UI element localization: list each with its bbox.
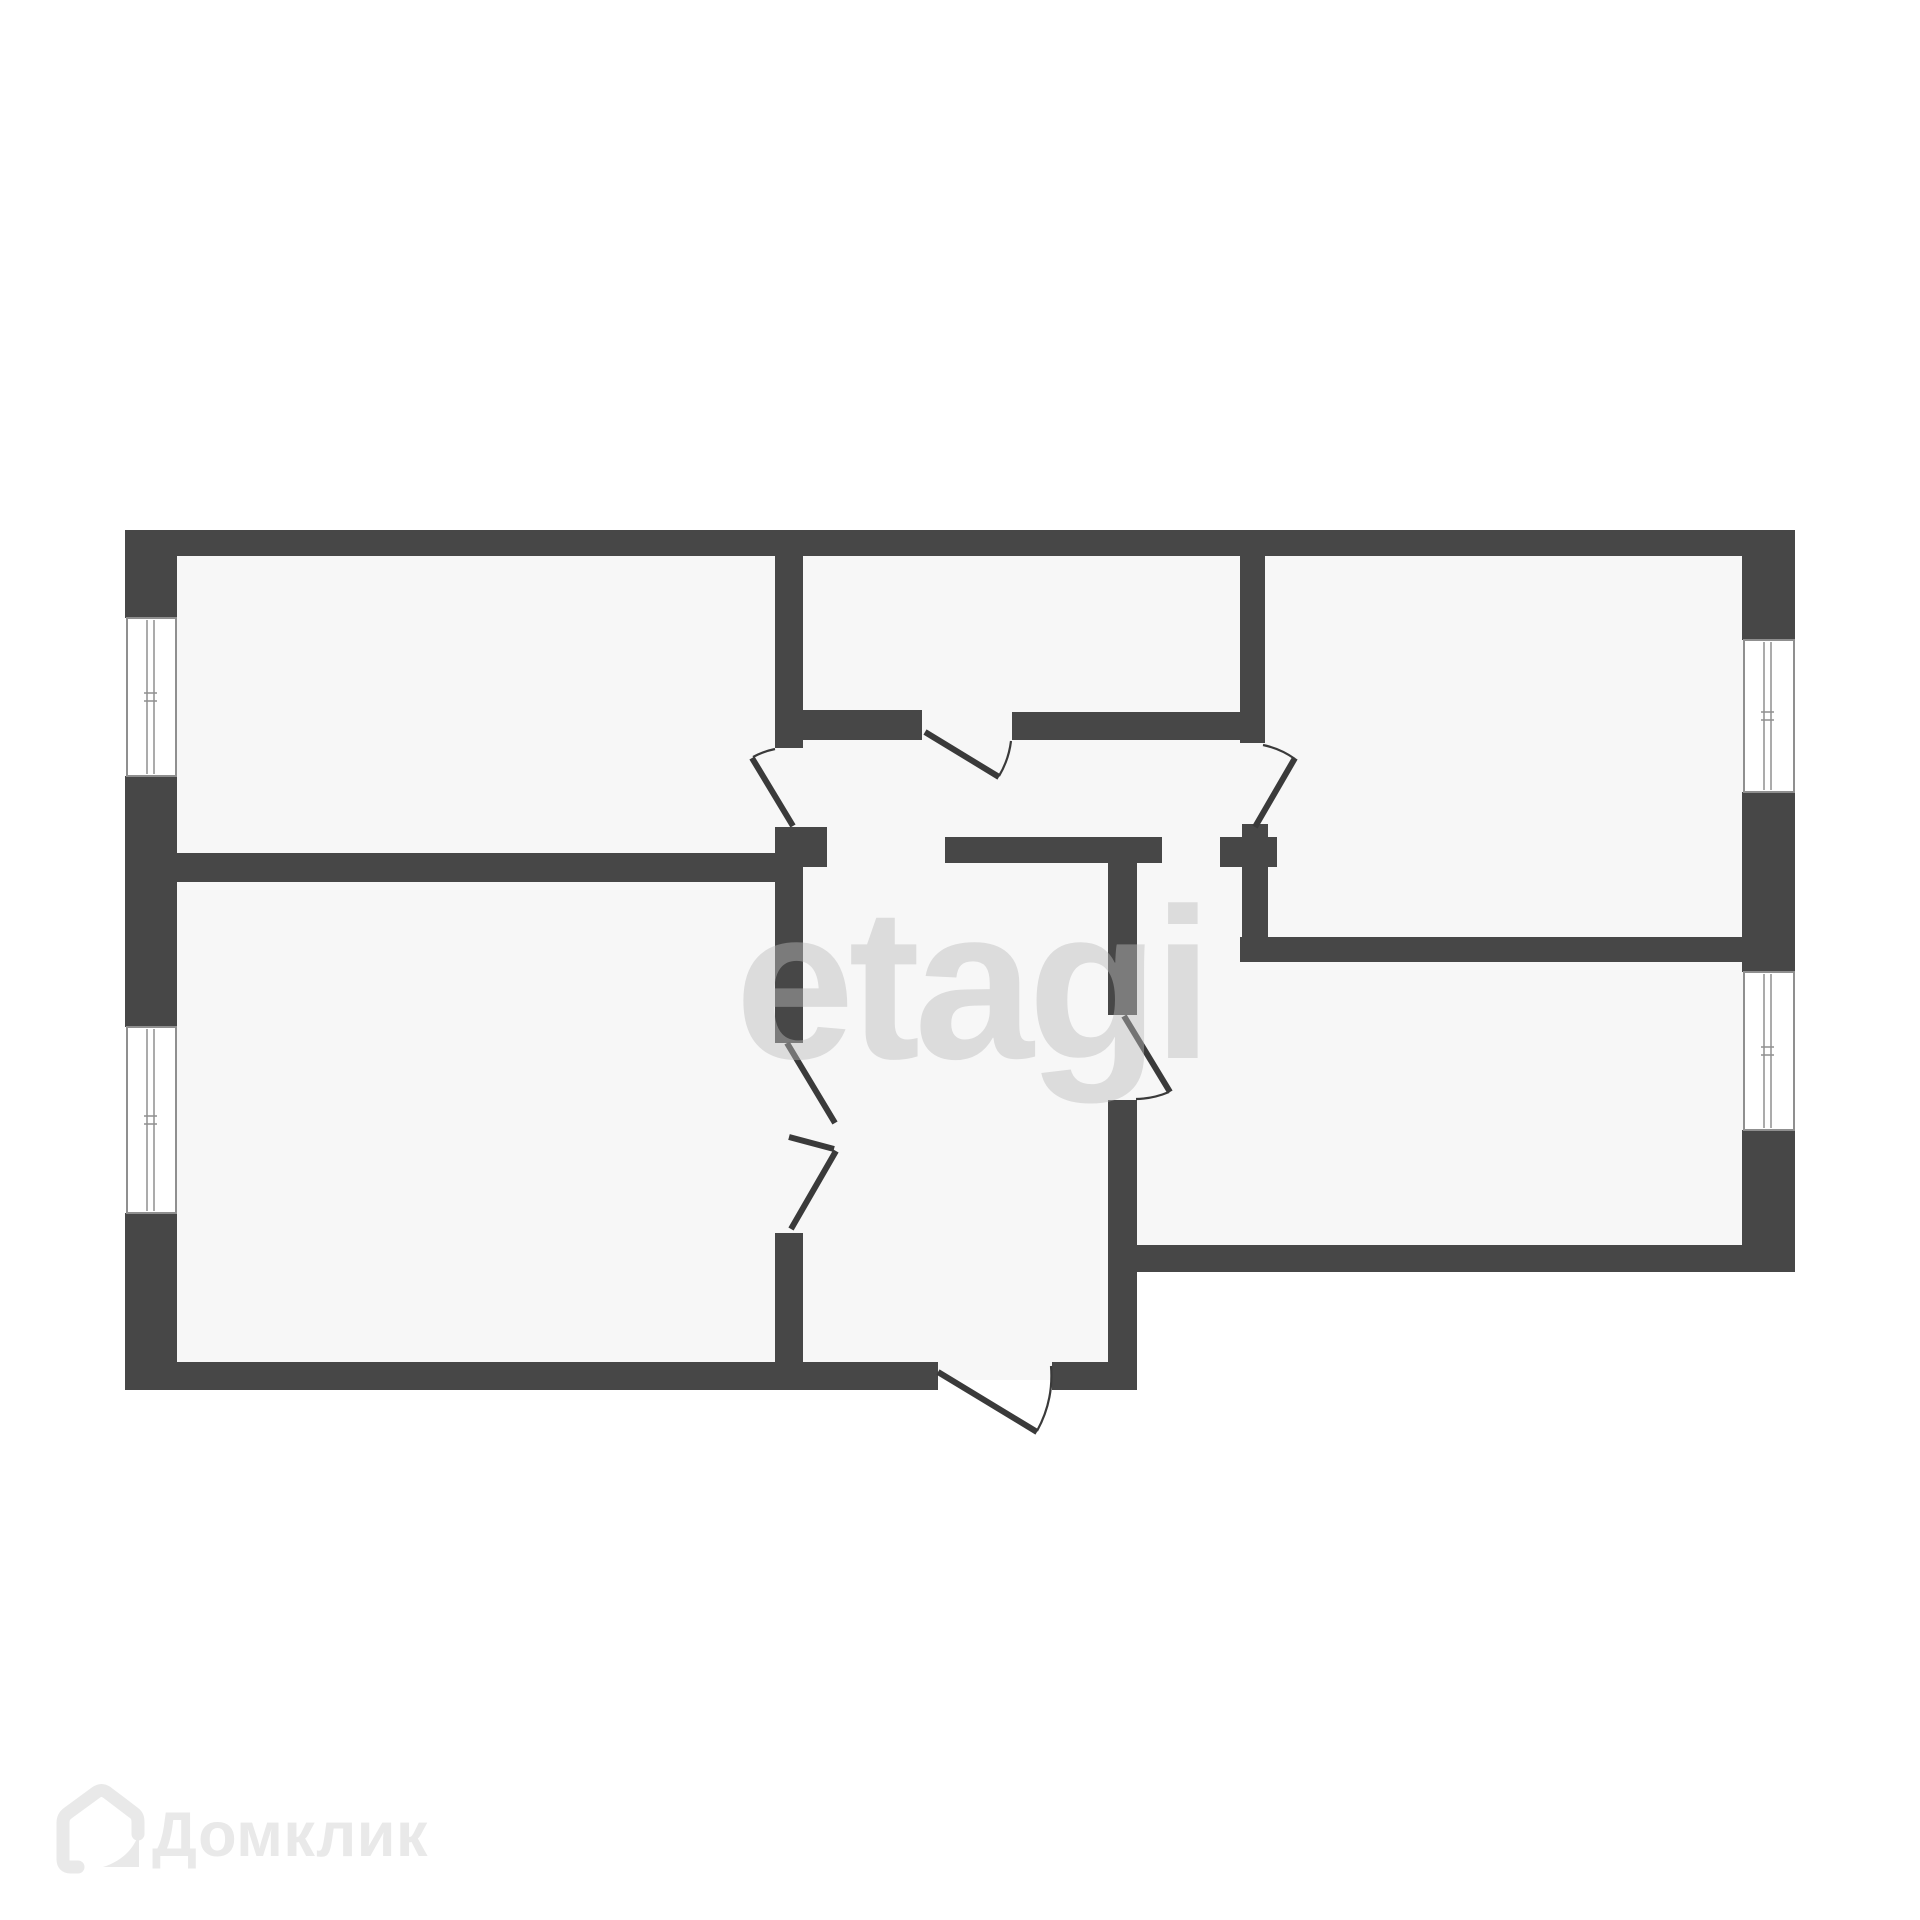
door-entrance-leaf: [938, 1372, 1037, 1432]
window-right-lower-box: [1744, 972, 1794, 1130]
wall-hallway-bottom: [945, 837, 1162, 863]
wall-top-right-room-left: [1240, 556, 1265, 743]
window-left-upper: [127, 618, 176, 776]
wall-outer-right-middle: [1742, 792, 1795, 972]
watermark-etagi: etagi: [735, 863, 1207, 1104]
window-right-upper-box: [1744, 640, 1794, 792]
wall-outer-right-upper: [1742, 530, 1795, 640]
wall-right-rooms-divider: [1240, 937, 1742, 962]
window-right-lower: [1744, 972, 1794, 1130]
wall-top-middle-bottom-left: [803, 710, 922, 740]
domclick-logo: Домклик: [63, 1790, 428, 1870]
wall-hall-left-lower: [775, 1233, 803, 1362]
floorplan-svg: etagi Домклик: [0, 0, 1920, 1920]
wall-top-middle-bottom-right: [1012, 712, 1265, 740]
window-left-upper-box: [127, 618, 176, 776]
wall-door3-jamb: [1220, 837, 1277, 867]
wall-top-left-room-right: [775, 556, 803, 748]
wall-outer-top: [125, 530, 1795, 556]
wall-outer-bottom-right: [1137, 1245, 1795, 1272]
wall-outer-left-middle: [125, 776, 177, 1027]
window-right-upper: [1744, 640, 1794, 792]
window-left-lower: [127, 1027, 176, 1213]
floorplan-image: etagi Домклик: [0, 0, 1920, 1920]
wall-outer-left-upper: [125, 530, 177, 618]
window-left-lower-box: [127, 1027, 176, 1213]
logo-text: Домклик: [152, 1800, 428, 1870]
wall-outer-bottom-left-a: [125, 1362, 938, 1390]
wall-left-rooms-divider: [177, 853, 803, 882]
wall-step-vertical: [1108, 1100, 1137, 1390]
